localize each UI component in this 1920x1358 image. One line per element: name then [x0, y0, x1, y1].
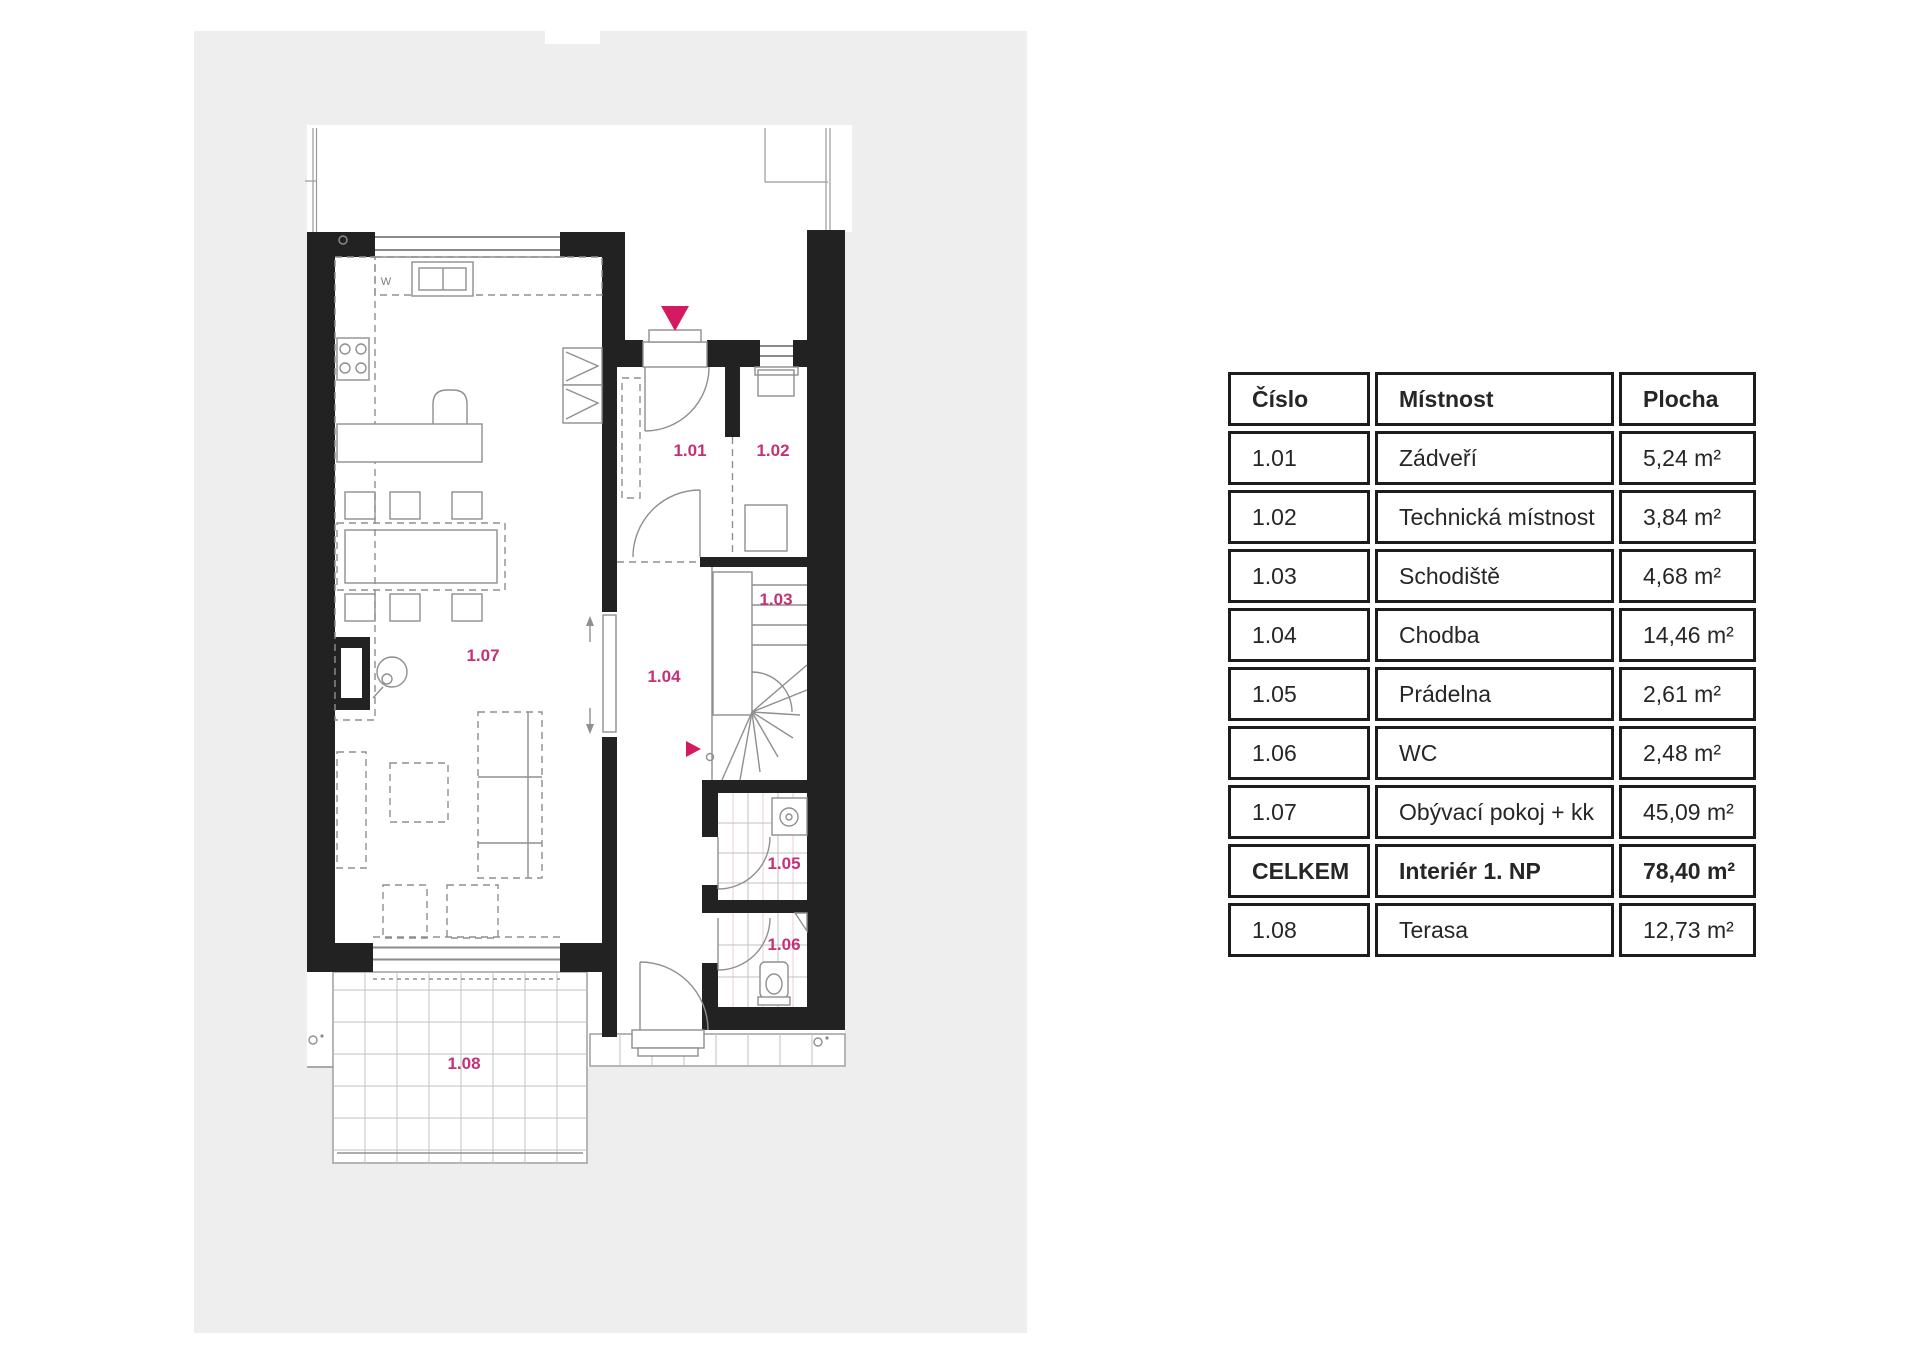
kitchen-mark: W: [381, 276, 392, 288]
room-label-1-02: 1.02: [756, 441, 789, 460]
table-cell-area: 12,73 m²: [1619, 903, 1756, 957]
table-cell-room: Prádelna: [1375, 667, 1614, 721]
table-cell-area: 2,48 m²: [1619, 726, 1756, 780]
table-row: 1.01Zádveří5,24 m²: [1228, 431, 1756, 485]
table-cell-area: 14,46 m²: [1619, 608, 1756, 662]
room-areas-table: Číslo Místnost Plocha 1.01Zádveří5,24 m²…: [1223, 367, 1761, 962]
table-header-row: Číslo Místnost Plocha: [1228, 372, 1756, 426]
table-cell-number: 1.08: [1228, 903, 1370, 957]
page: W: [0, 0, 1920, 1358]
table-row: CELKEMInteriér 1. NP78,40 m²: [1228, 844, 1756, 898]
floor-plan-panel: W: [194, 31, 1027, 1333]
table-row: 1.04Chodba14,46 m²: [1228, 608, 1756, 662]
table-row: 1.08Terasa12,73 m²: [1228, 903, 1756, 957]
table-cell-area: 45,09 m²: [1619, 785, 1756, 839]
floor-plan-drawing: W: [194, 31, 1027, 1333]
table-cell-number: 1.03: [1228, 549, 1370, 603]
table-cell-room: Obývací pokoj + kk: [1375, 785, 1614, 839]
table-cell-room: Technická místnost: [1375, 490, 1614, 544]
table-cell-number: 1.05: [1228, 667, 1370, 721]
table-cell-room: Interiér 1. NP: [1375, 844, 1614, 898]
table-cell-number: 1.04: [1228, 608, 1370, 662]
table-cell-room: Chodba: [1375, 608, 1614, 662]
room-label-1-01: 1.01: [673, 441, 706, 460]
table-row: 1.05Prádelna2,61 m²: [1228, 667, 1756, 721]
table-cell-room: WC: [1375, 726, 1614, 780]
area-table-body: 1.01Zádveří5,24 m²1.02Technická místnost…: [1228, 431, 1756, 957]
table-cell-number: 1.07: [1228, 785, 1370, 839]
room-label-1-03: 1.03: [759, 590, 792, 609]
table-row: 1.02Technická místnost3,84 m²: [1228, 490, 1756, 544]
table-row: 1.07Obývací pokoj + kk45,09 m²: [1228, 785, 1756, 839]
room-label-1-06: 1.06: [767, 935, 800, 954]
table-cell-area: 3,84 m²: [1619, 490, 1756, 544]
table-cell-area: 4,68 m²: [1619, 549, 1756, 603]
column-header-room: Místnost: [1375, 372, 1614, 426]
table-cell-number: 1.01: [1228, 431, 1370, 485]
table-cell-room: Zádveří: [1375, 431, 1614, 485]
room-label-1-08: 1.08: [447, 1054, 480, 1073]
table-cell-number: 1.06: [1228, 726, 1370, 780]
table-cell-area: 78,40 m²: [1619, 844, 1756, 898]
room-label-1-07: 1.07: [466, 646, 499, 665]
table-cell-area: 5,24 m²: [1619, 431, 1756, 485]
table-row: 1.03Schodiště4,68 m²: [1228, 549, 1756, 603]
area-table: Číslo Místnost Plocha 1.01Zádveří5,24 m²…: [1223, 367, 1761, 962]
table-cell-number: 1.02: [1228, 490, 1370, 544]
room-label-1-05: 1.05: [767, 854, 800, 873]
column-header-area: Plocha: [1619, 372, 1756, 426]
room-label-1-04: 1.04: [647, 667, 681, 686]
column-header-number: Číslo: [1228, 372, 1370, 426]
table-row: 1.06WC2,48 m²: [1228, 726, 1756, 780]
table-cell-number: CELKEM: [1228, 844, 1370, 898]
table-cell-room: Terasa: [1375, 903, 1614, 957]
table-cell-room: Schodiště: [1375, 549, 1614, 603]
table-cell-area: 2,61 m²: [1619, 667, 1756, 721]
